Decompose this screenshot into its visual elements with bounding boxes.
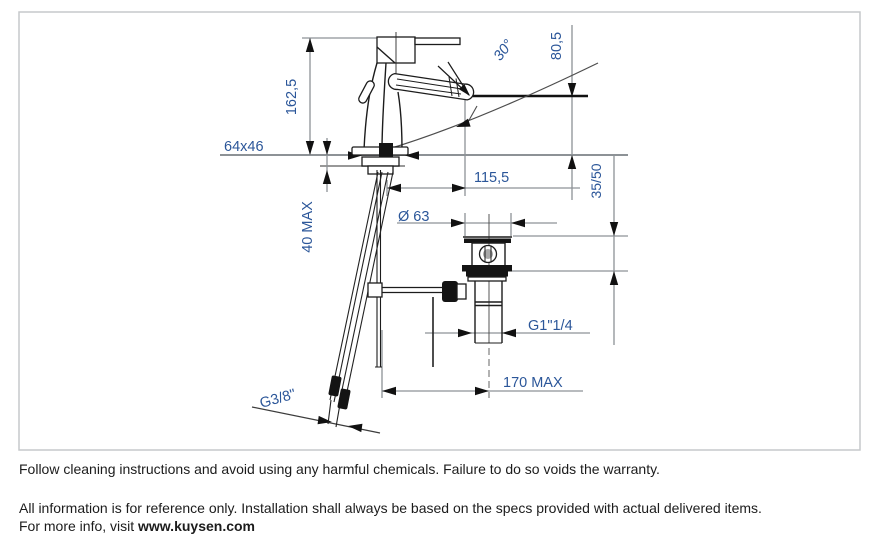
mounting-bracket <box>362 157 399 166</box>
pivot-rod-nut <box>442 281 458 302</box>
more-info-prefix: For more info, visit <box>19 518 138 534</box>
dim-drain-depth-range: 35/50 <box>588 163 604 198</box>
drawing-border <box>19 12 860 450</box>
dim-drain-thread: G1"1/4 <box>528 318 573 334</box>
dim-drain-diameter: Ø 63 <box>398 209 429 225</box>
spec-sheet-page: 162,5 80,5 30° 64x46 40 MAX 115,5 Ø 63 3… <box>0 0 870 550</box>
warranty-note: Follow cleaning instructions and avoid u… <box>19 460 660 478</box>
reference-note: All information is for reference only. I… <box>19 499 762 517</box>
dim-spout-reach: 115,5 <box>474 170 509 186</box>
dim-total-height: 162,5 <box>284 79 300 115</box>
dim-base-plate: 64x46 <box>224 139 264 155</box>
dim-counter-thickness: 40 MAX <box>300 201 316 253</box>
linkage-junction <box>368 283 382 297</box>
dim-reach-max: 170 MAX <box>503 375 563 391</box>
more-info-note: For more info, visit www.kuysen.com <box>19 517 255 535</box>
dim-spout-height: 80,5 <box>549 32 565 60</box>
website-link: www.kuysen.com <box>138 518 255 534</box>
lever-handle <box>415 38 460 45</box>
